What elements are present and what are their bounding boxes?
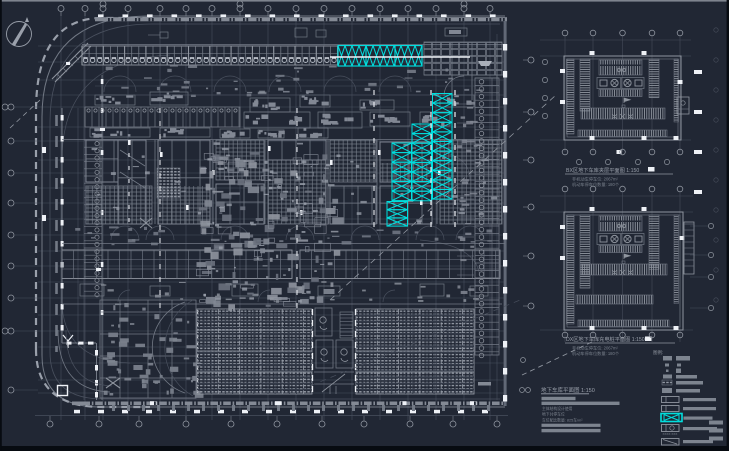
svg-text:主体结构设计使用: 主体结构设计使用 bbox=[542, 406, 573, 411]
svg-text:XXXX XXX: XXXX XXX bbox=[663, 432, 678, 436]
svg-text:地下共停车位: 地下共停车位 bbox=[542, 412, 565, 417]
svg-text:地下车库平面图 1:150: 地下车库平面图 1:150 bbox=[541, 386, 595, 394]
svg-text:BX区地下车库夹层平面图 1:150: BX区地下车库夹层平面图 1:150 bbox=[566, 166, 639, 174]
svg-text:车位配比数量: 825车/m²: 车位配比数量: 825车/m² bbox=[542, 417, 583, 422]
svg-text:机动车停车位数量: 180个: 机动车停车位数量: 180个 bbox=[572, 350, 620, 357]
svg-text:机动车停车位数量: 180个: 机动车停车位数量: 180个 bbox=[572, 181, 620, 188]
svg-text:图例:: 图例: bbox=[653, 349, 663, 356]
svg-text:DX区地下车库充电桩平面图 1:150: DX区地下车库充电桩平面图 1:150 bbox=[566, 335, 645, 343]
